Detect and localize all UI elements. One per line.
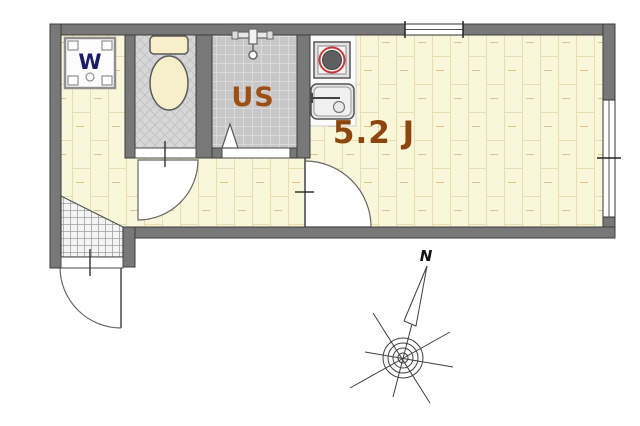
- main-room-label: 5.2 J: [333, 115, 415, 151]
- washer-label: W: [78, 50, 101, 74]
- burner: [323, 51, 342, 70]
- wall-left: [50, 24, 61, 268]
- wall-bottom: [123, 227, 615, 238]
- wall-bathroom-kitchen: [297, 35, 310, 158]
- bathroom-door-opening: [222, 148, 290, 158]
- compass-north-label: N: [420, 247, 433, 265]
- toilet-icon: [150, 36, 188, 110]
- wall-entrance-stub: [123, 227, 135, 267]
- stove-icon: [314, 42, 350, 78]
- bathroom-label: US: [231, 82, 274, 113]
- wall-bathroom-sill-left: [212, 148, 222, 158]
- kitchen-sink-icon: [311, 84, 354, 119]
- top-window: [405, 21, 463, 38]
- wall-toilet-bathroom: [196, 35, 212, 158]
- entrance-door-opening: [61, 257, 123, 268]
- floorplan: W US 5.2 J: [0, 0, 640, 426]
- compass-rose-icon: [350, 266, 453, 403]
- entrance-door-swing: [60, 267, 121, 328]
- wall-top: [50, 24, 615, 35]
- north-needle: [404, 266, 427, 326]
- wall-bathroom-sill-right: [290, 148, 297, 158]
- wall-washer-toilet: [125, 35, 135, 158]
- floorplan-drawing: W US 5.2 J: [0, 0, 640, 426]
- wall-right-upper: [603, 24, 615, 100]
